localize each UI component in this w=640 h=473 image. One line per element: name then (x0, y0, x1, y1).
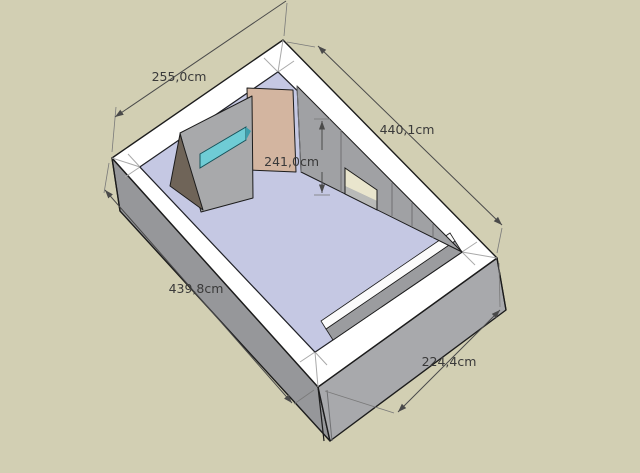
dimension-label-top-left-wall[interactable]: 255,0cm (152, 69, 207, 84)
dimension-label-top-right-wall[interactable]: 440,1cm (380, 122, 435, 137)
viewport-canvas[interactable]: 255,0cm 440,1cm 241,0cm 439,8cm 224,4cm (0, 0, 640, 473)
model-viewport[interactable]: 255,0cm 440,1cm 241,0cm 439,8cm 224,4cm (0, 0, 640, 473)
dimension-label-wall-height[interactable]: 241,0cm (264, 154, 319, 169)
dimension-label-bottom-right-wall[interactable]: 224,4cm (422, 354, 477, 369)
dimension-label-bottom-left-wall[interactable]: 439,8cm (169, 281, 224, 296)
